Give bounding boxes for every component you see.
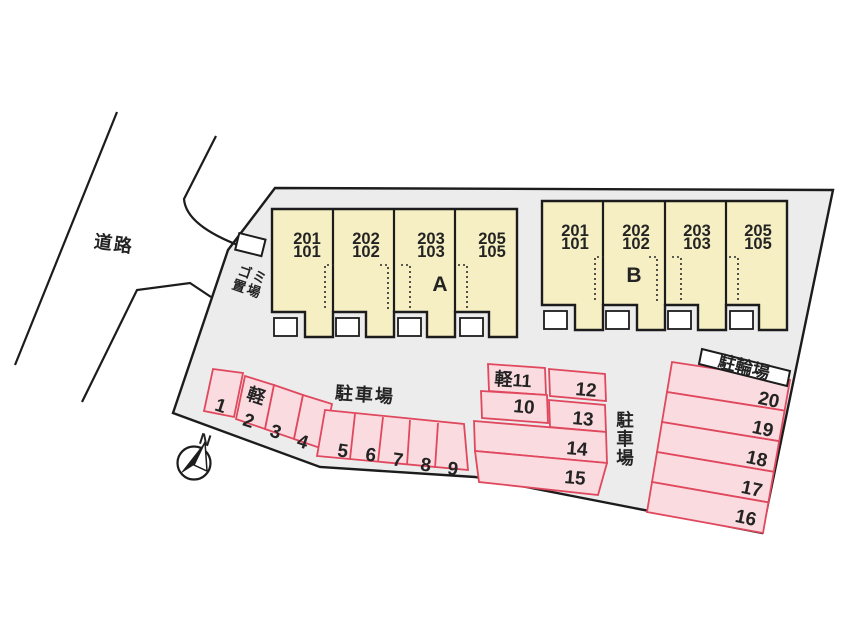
stall-number: 19 (750, 417, 775, 442)
north-label: N (197, 431, 213, 451)
parking-lot-label-vertical: 駐 車 場 (616, 410, 634, 468)
parking-lot-label: 駐車場 (334, 382, 395, 407)
terrace-box (274, 318, 297, 336)
unit-number-lower: 103 (683, 235, 711, 253)
stall-number: 10 (513, 396, 536, 419)
unit-number-lower: 105 (478, 243, 506, 261)
building-a-label: A (432, 273, 447, 296)
terrace-box (398, 318, 421, 336)
stall-number: 17 (739, 477, 764, 502)
terrace-box (544, 311, 567, 329)
unit-number-lower: 102 (622, 235, 650, 253)
road-label: 道路 (93, 230, 136, 256)
parking-lot-label-vertical-char: 駐 (616, 410, 634, 430)
site-plan-drawing: 道路 201 101 202 102 203 103 205 105 A (0, 0, 846, 634)
unit-number-lower: 102 (352, 243, 380, 261)
parking-lot-label-vertical-char: 場 (616, 448, 634, 468)
stall-number: 18 (744, 447, 769, 472)
stall-number: 12 (575, 379, 598, 402)
terrace-box (668, 311, 691, 329)
terrace-box (606, 311, 629, 329)
stall-number: 軽11 (494, 368, 532, 392)
stall-number: 16 (733, 506, 758, 531)
terrace-box (460, 318, 483, 336)
building-b: 201 101 202 102 203 103 205 105 B (542, 201, 787, 330)
stall-number: 14 (566, 438, 589, 461)
road-line-northeast (184, 136, 243, 247)
unit-number-lower: 103 (417, 243, 445, 261)
compass: N (178, 431, 213, 480)
parking-lot-label-vertical-char: 車 (616, 429, 634, 449)
stall-number: 9 (446, 458, 459, 480)
terrace-box (336, 318, 359, 336)
building-a: 201 101 202 102 203 103 205 105 A (272, 209, 517, 337)
site-plan: 道路 201 101 202 102 203 103 205 105 A (0, 0, 846, 634)
stall-number: 20 (756, 388, 781, 413)
stall-number: 13 (572, 408, 595, 431)
stall-number: 15 (564, 467, 587, 490)
building-b-label: B (626, 264, 641, 287)
terrace-box (730, 311, 753, 329)
unit-number-lower: 101 (293, 243, 321, 261)
unit-number-lower: 105 (744, 235, 772, 253)
unit-number-lower: 101 (561, 235, 589, 253)
